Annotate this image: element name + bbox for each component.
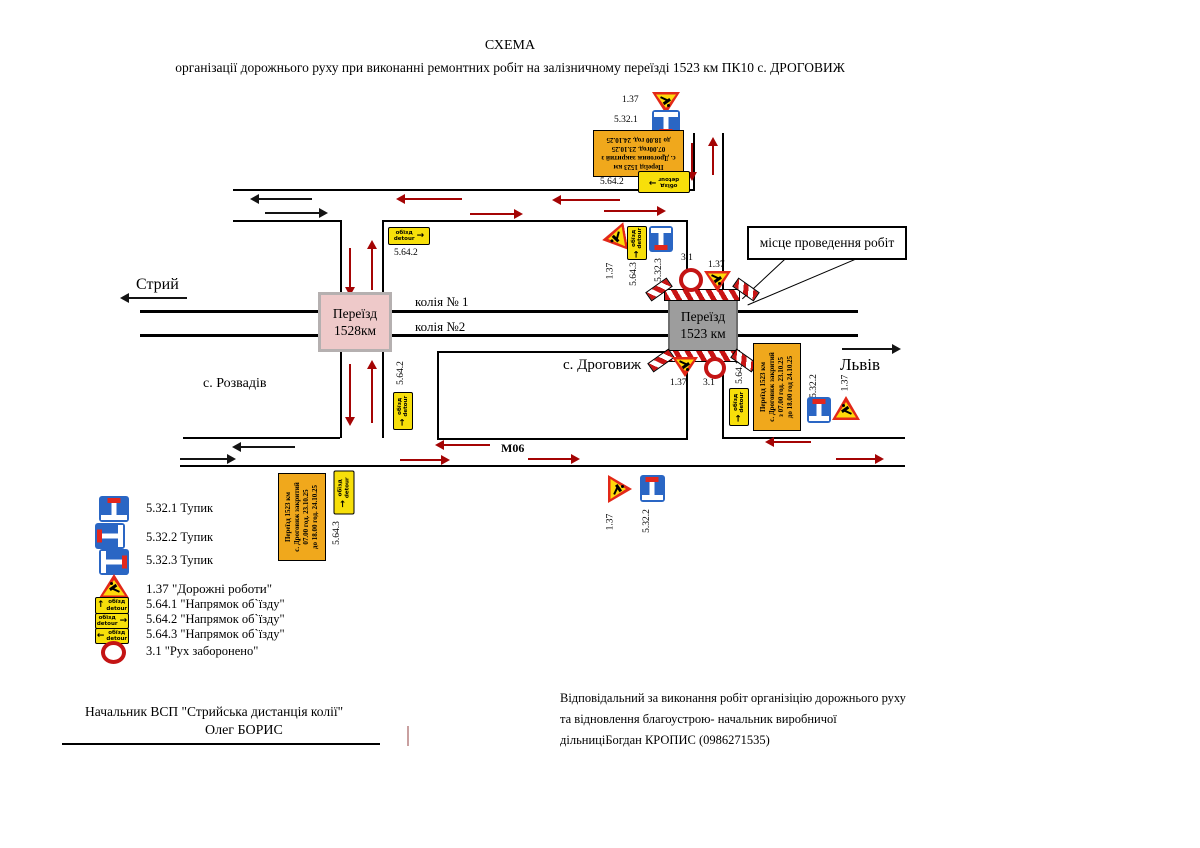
arrow-down-red-1523top xyxy=(691,143,693,173)
road-works-sign-toproad xyxy=(600,222,628,254)
signature-left-name: Олег БОРИС xyxy=(205,723,283,739)
railway-track-2-line xyxy=(140,334,858,337)
legend-label-5642: 5.64.2 "Напрямок об`їзду" xyxy=(146,612,285,627)
detour-arrow-icon: → xyxy=(735,415,744,423)
label-5-64-3-toproad: 5.64.3 xyxy=(628,256,640,292)
town-rozvadiv: с. Розвадів xyxy=(203,376,266,392)
detour-sign-vertical-sw: → обїзд detour xyxy=(334,471,355,515)
detour-arrow-icon: ↑ xyxy=(97,601,105,610)
road1523-left-top xyxy=(693,133,695,191)
arrow-right-black-lviv xyxy=(842,348,893,350)
detour-arrow-icon: → xyxy=(399,419,408,427)
arrow-up-red-1523top xyxy=(712,145,714,175)
legend-label-137: 1.37 "Дорожні роботи" xyxy=(146,581,272,597)
arrow-left-black-m06 xyxy=(240,446,295,448)
detour-arrow-icon: → xyxy=(120,617,128,626)
legend-label-5323: 5.32.3 Тупик xyxy=(146,553,213,568)
town-drohovyzh: с. Дроговиж xyxy=(563,357,641,374)
road1528-left-upper xyxy=(340,220,342,292)
detour-arrow-icon: ← xyxy=(97,632,105,641)
detour-sign-vertical-toproad: → обїзд detour xyxy=(627,226,647,260)
callout-leader-2 xyxy=(747,256,862,305)
arrow-down-red-1528bot xyxy=(349,364,351,418)
page-subtitle: організації дорожнього руху при виконанн… xyxy=(120,60,900,76)
arrow-down-red-1528top xyxy=(349,248,351,288)
legend-label-5322: 5.32.2 Тупик xyxy=(146,530,213,545)
responsible-line3: дільниціБогдан КРОПИС (0986271535) xyxy=(560,730,940,751)
info-board-bottom: Переїзд 1523 км с. Дроговиж закритий 07.… xyxy=(278,473,326,561)
m06-upper-edge-a xyxy=(183,437,340,439)
worksite-callout: місце проведення робіт xyxy=(747,226,907,260)
responsible-line1: Відповідальний за виконання робіт органі… xyxy=(560,688,940,709)
dead-end-sign-5323-toproad xyxy=(649,226,673,252)
road-works-sign-right xyxy=(832,396,860,420)
arrow-right-red-m06-2 xyxy=(528,458,572,460)
detour-sign-toproad: обїзд detour → xyxy=(388,227,430,245)
legend-icon-31 xyxy=(101,641,126,664)
arrow-right-red-toproad-1 xyxy=(470,213,515,215)
crossing-1523-line2: 1523 км xyxy=(680,325,725,342)
worksite-callout-text: місце проведення робіт xyxy=(760,235,895,251)
track2-label: колія №2 xyxy=(415,319,465,335)
crossing-1523: Переїзд 1523 км xyxy=(668,298,738,352)
crossing-1523-line1: Переїзд xyxy=(681,308,725,325)
label-1-37-below: 1.37 xyxy=(670,378,687,388)
top-road-lower-edge-b xyxy=(382,220,686,222)
legend-label-5321: 5.32.1 Тупик xyxy=(146,501,213,516)
arrow-left-red-m06-1 xyxy=(443,444,490,446)
detour-arrow-icon: → xyxy=(417,232,425,241)
signature-line xyxy=(62,743,380,745)
label-5-64-3-sw: 5.64.3 xyxy=(331,514,343,552)
legend-label-5643: 5.64.3 "Напрямок об`їзду" xyxy=(146,627,285,642)
legend-label-31: 3.1 "Рух заборонено" xyxy=(146,644,258,659)
m06-label: М06 xyxy=(501,441,524,456)
legend-icon-5322 xyxy=(95,523,125,549)
legend-icon-137 xyxy=(99,574,129,598)
dead-end-sign-5322-south xyxy=(640,475,665,502)
m06-upper-edge-b xyxy=(722,437,905,439)
info-board-right: Переїзд 1523 км с. Дроговиж закритий з 0… xyxy=(753,343,801,431)
road-works-sign-below xyxy=(672,357,698,377)
page-title: СХЕМА xyxy=(140,38,880,54)
label-5-32-1-topcluster: 5.32.1 xyxy=(614,115,638,125)
detour-sign-vertical-below: → обїзд detour xyxy=(729,388,749,426)
label-5-32-2-south: 5.32.2 xyxy=(641,502,653,540)
top-road-lower-edge-a xyxy=(233,220,340,222)
arrow-left-black-toproad xyxy=(258,198,312,200)
stray-tick xyxy=(407,726,409,746)
responsible-line2: та відновлення благоустрою- начальник ви… xyxy=(560,709,940,730)
legend-icon-5321 xyxy=(99,496,129,522)
arrow-right-black-toproad xyxy=(265,212,320,214)
arrow-right-black-m06 xyxy=(180,458,228,460)
arrow-left-red-toproad-2 xyxy=(560,199,620,201)
road-works-sign-south xyxy=(608,475,632,503)
arrow-right-red-m06-1 xyxy=(400,459,442,461)
legend-icon-5641: ↑ обїздdetour xyxy=(95,597,129,614)
arrow-up-red-1528bot xyxy=(371,368,373,423)
detour-sign-topcluster: обїзд detour → xyxy=(638,171,690,193)
label-5-64-2-toproad: 5.64.2 xyxy=(394,248,418,258)
top-road-upper-edge xyxy=(233,189,693,191)
responsible-text: Відповідальний за виконання робіт органі… xyxy=(560,688,940,751)
detour-sign-vertical-1528: → обїзд detour xyxy=(393,392,413,430)
road1528-right-upper xyxy=(382,220,384,292)
arrow-up-red-1528top xyxy=(371,248,373,290)
crossing-1528-line1: Переїзд xyxy=(333,305,377,322)
label-1-37-above: 1.37 xyxy=(708,260,725,270)
legend-icon-5323 xyxy=(99,549,129,575)
label-5-64-2-1528: 5.64.2 xyxy=(395,354,407,392)
town-stryi: Стрий xyxy=(136,276,179,294)
arrow-right-red-m06-3 xyxy=(836,458,876,460)
crossing-1528: Переїзд 1528км xyxy=(318,292,392,352)
legend-label-5641: 5.64.1 "Напрямок об`їзду" xyxy=(146,597,285,612)
railway-track-1-line xyxy=(140,310,858,313)
crossing-1528-line2: 1528км xyxy=(334,322,376,339)
legend-icon-5642: обїздdetour → xyxy=(95,613,129,629)
label-3-1-above: 3.1 xyxy=(681,253,693,263)
label-1-37-right: 1.37 xyxy=(839,367,851,399)
m06-lower-edge xyxy=(180,465,905,467)
detour-arrow-icon: → xyxy=(340,500,349,508)
label-1-37-south: 1.37 xyxy=(604,506,616,538)
detour-arrow-icon: → xyxy=(633,251,642,259)
arrow-right-red-toproad-2 xyxy=(604,210,658,212)
road1528-right-lower xyxy=(382,352,384,438)
road-works-sign-above xyxy=(704,271,731,292)
arrow-left-red-toproad-1 xyxy=(404,198,462,200)
road1528-left-lower xyxy=(340,352,342,438)
detour-arrow-icon: → xyxy=(649,178,657,187)
info-board-top: Переїзд 1523 км с. Дроговиж закритий з 0… xyxy=(593,130,684,177)
signature-left-title: Начальник ВСП "Стрийська дистанція колії… xyxy=(85,704,343,720)
label-1-37-toproad: 1.37 xyxy=(604,254,616,288)
label-1-37-topcluster: 1.37 xyxy=(622,95,639,105)
scheme-page: СХЕМА організації дорожнього руху при ви… xyxy=(0,0,1200,848)
dead-end-sign-5322-right xyxy=(807,397,831,423)
track1-label: колія № 1 xyxy=(415,294,468,310)
label-3-1-below: 3.1 xyxy=(703,378,715,388)
label-5-64-2-topcluster: 5.64.2 xyxy=(600,177,624,187)
arrow-left-black-stryi xyxy=(128,297,187,299)
arrow-left-red-m06-2 xyxy=(773,441,811,443)
no-entry-sign-below xyxy=(704,357,726,379)
no-entry-sign-above xyxy=(679,268,703,292)
